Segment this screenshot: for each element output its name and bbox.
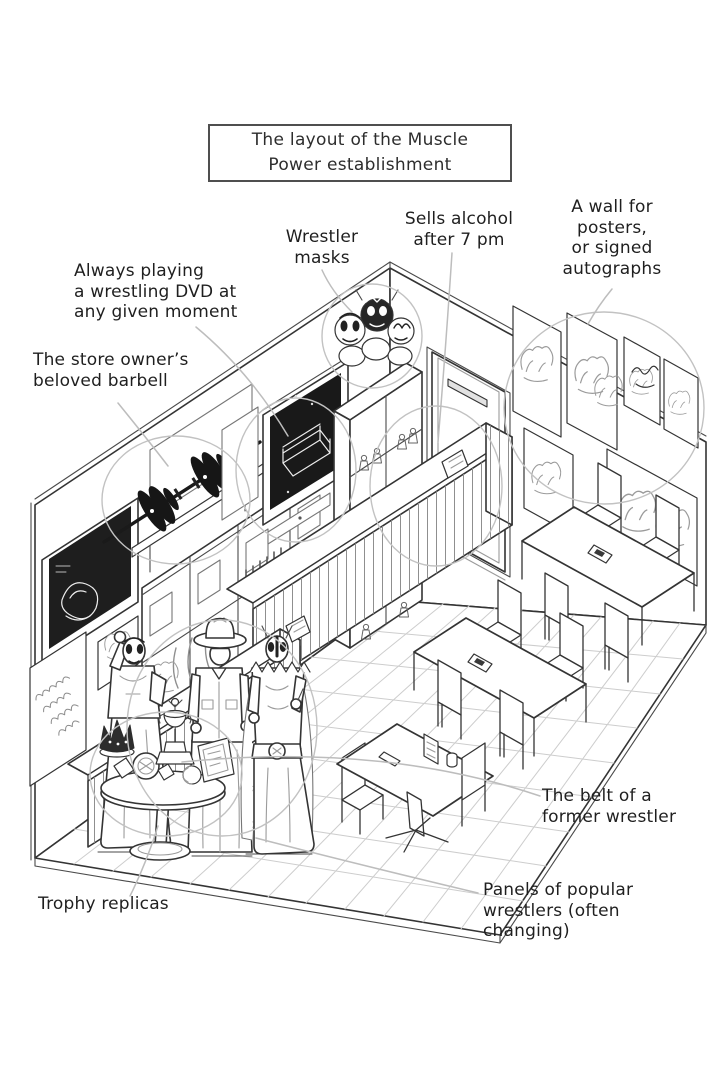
label-poster-wall: A wall for posters, or signed autographs [556,197,668,280]
label-barbell: The store owner’s beloved barbell [33,350,189,391]
label-dvd: Always playing a wrestling DVD at any gi… [74,261,238,323]
leader-posters [588,289,612,324]
cup [447,753,457,767]
label-panels: Panels of popular wrestlers (often chang… [483,880,633,942]
label-belt: The belt of a former wrestler [542,786,676,827]
label-trophy-replicas: Trophy replicas [38,894,169,915]
title-box: The layout of the Muscle Power establish… [208,124,512,182]
manga-layout-page: The layout of the Muscle Power establish… [0,0,728,1088]
label-wrestler-masks: Wrestler masks [269,227,375,268]
globe-trophy [183,766,201,784]
label-sells-alcohol: Sells alcohol after 7 pm [398,209,520,250]
